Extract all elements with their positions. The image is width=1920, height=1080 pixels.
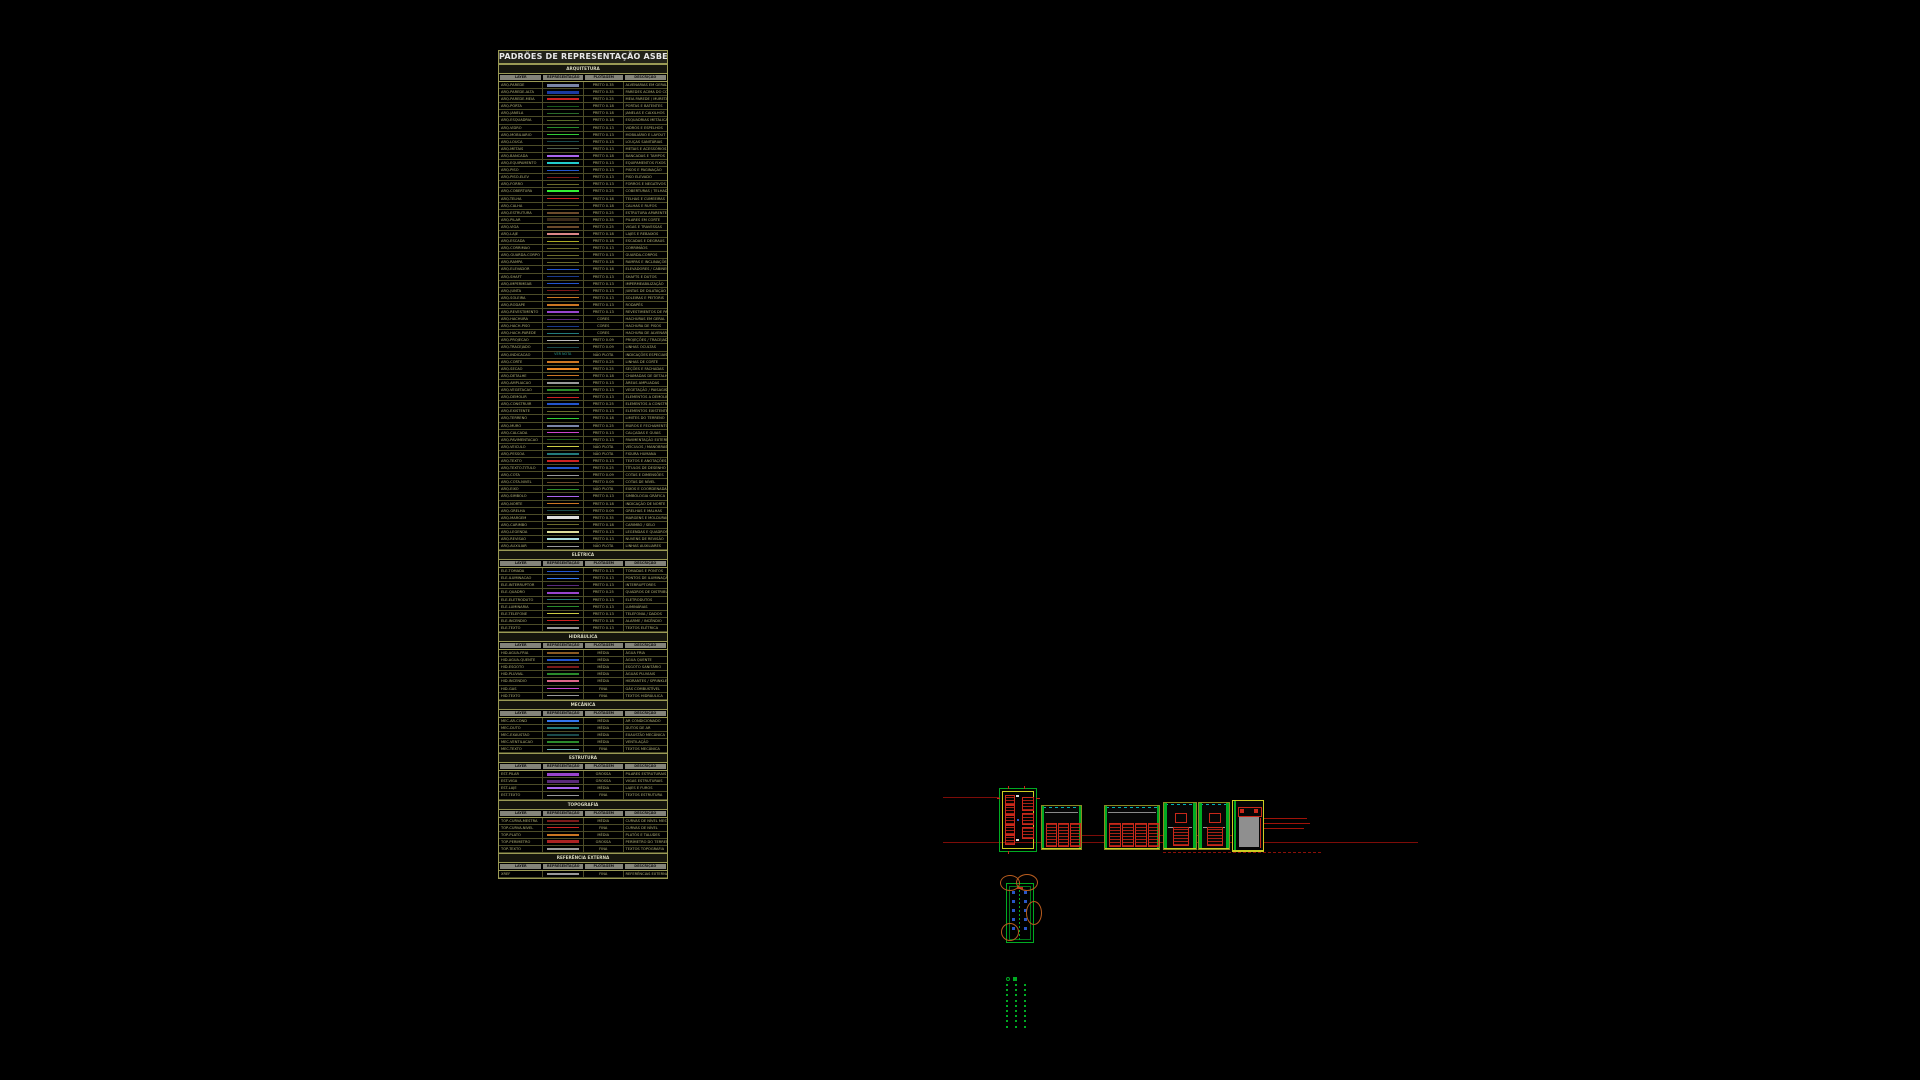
line-sample [543, 739, 585, 745]
layer-description: MARGENS E MOLDURAS [624, 515, 667, 521]
plot-setting: CORES [584, 330, 624, 336]
layer-description: CALÇADAS E GUIAS [624, 430, 667, 436]
layer-name: MEC-VENTILACAO [499, 739, 543, 745]
column-header: LAYER [500, 864, 541, 869]
legend-glyph [1015, 1026, 1017, 1028]
layer-name: ARQ-PAREDE-MEIA [499, 96, 543, 102]
legend-glyph [1024, 1010, 1026, 1012]
legend-glyph [1006, 994, 1008, 996]
plot-setting: PRETO 0.13 [584, 139, 624, 145]
layer-description: HACHURA DE PISOS [624, 323, 667, 329]
layer-description: PILARES ESTRUTURAIS [624, 771, 667, 777]
line-sample [543, 82, 585, 88]
section-header: MECÂNICA [499, 700, 667, 710]
layer-description: TELHAS E CUMEEIRAS [624, 196, 667, 202]
line-sample [543, 181, 585, 187]
layer-name: HID-ESGOTO [499, 664, 543, 670]
legend-glyph [1015, 1020, 1017, 1022]
line-sample [543, 444, 585, 450]
layer-name: ARQ-GUARDA-CORPO [499, 252, 543, 258]
layer-row: ARQ-GUARDA-CORPOPRETO 0.13GUARDA-CORPOS [499, 252, 667, 259]
layer-row: ELE-ELETRODUTOPRETO 0.13ELETRODUTOS [499, 597, 667, 604]
plot-setting: FINA [584, 746, 624, 752]
line-sample [543, 618, 585, 624]
line-sample [543, 146, 585, 152]
layer-row: ARQ-MOBILIARIOPRETO 0.13MOBILIÁRIO E LAY… [499, 132, 667, 139]
layer-description: IMPERMEABILIZAÇÃO [624, 281, 667, 287]
column-header: LAYER [500, 75, 541, 80]
plot-setting: PRETO 0.18 [584, 522, 624, 528]
line-sample [543, 316, 585, 322]
layer-name: ELE-QUADRO [499, 589, 543, 595]
layer-row: ARQ-MARGEMPRETO 0.35MARGENS E MOLDURAS [499, 515, 667, 522]
plot-setting: PRETO 0.25 [584, 589, 624, 595]
line-sample [543, 188, 585, 194]
plot-setting: PRETO 0.13 [584, 252, 624, 258]
line-sample [543, 746, 585, 752]
line-sample [543, 718, 585, 724]
plot-setting: PRETO 0.13 [584, 568, 624, 574]
legend-glyph [1024, 1015, 1026, 1017]
layer-name: ARQ-AUXILIAR [499, 543, 543, 549]
legend-glyph [1006, 1010, 1008, 1012]
layer-description: PONTOS DE ILUMINAÇÃO [624, 575, 667, 581]
legend-glyph [1024, 1020, 1026, 1022]
layer-name: ELE-ILUMINACAO [499, 575, 543, 581]
layer-row: HID-PLUVIALMÉDIAÁGUAS PLUVIAIS [499, 671, 667, 678]
layer-description: ÁGUAS PLUVIAIS [624, 671, 667, 677]
plot-setting: PRETO 0.18 [584, 238, 624, 244]
line-sample [543, 380, 585, 386]
line-sample [543, 401, 585, 407]
layer-row: ARQ-PAREDEPRETO 0.35ALVENARIAS EM GERAL [499, 82, 667, 89]
layer-description: INDICAÇÃO DE NORTE [624, 501, 667, 507]
plot-setting: MÉDIA [584, 818, 624, 824]
line-sample [543, 110, 585, 116]
layer-description: JUNTAS DE DILATAÇÃO [624, 288, 667, 294]
line-sample [543, 575, 585, 581]
line-sample [543, 139, 585, 145]
layer-description: ELETRODUTOS [624, 597, 667, 603]
layer-name: ARQ-TEXTO [499, 458, 543, 464]
layer-row: ARQ-RAMPAPRETO 0.18RAMPAS E INCLINAÇÕES [499, 259, 667, 266]
layer-description: SOLEIRAS E PEITORIS [624, 295, 667, 301]
line-sample [543, 415, 585, 421]
column-header-row: LAYERREPRESENTAÇÃOPLOTAGEMDESCRIÇÃO [499, 560, 667, 568]
section-header: TOPOGRAFIA [499, 800, 667, 810]
layer-description: CURVAS DE NÍVEL [624, 825, 667, 831]
layer-description: LINHAS AUXILIARES [624, 543, 667, 549]
layer-row: EST-TEXTOFINATEXTOS ESTRUTURA [499, 792, 667, 799]
layer-row: ARQ-GRELHAPRETO 0.09GRELHAS E MALHAS [499, 508, 667, 515]
layer-row: ARQ-REVESTIMENTOPRETO 0.13REVESTIMENTOS … [499, 309, 667, 316]
line-sample [543, 597, 585, 603]
line-sample [543, 423, 585, 429]
layer-description: MEIA PAREDE / MURETA [624, 96, 667, 102]
layer-description: BANCADAS E TAMPOS [624, 153, 667, 159]
layer-description: SIMBOLOGIA GRÁFICA [624, 493, 667, 499]
layer-name: HID-TEXTO [499, 693, 543, 699]
layer-description: MOBILIÁRIO E LAYOUT [624, 132, 667, 138]
plot-setting: PRETO 0.25 [584, 210, 624, 216]
layer-description: HACHURA DE ALVENARIA [624, 330, 667, 336]
line-sample [543, 408, 585, 414]
line-sample [543, 231, 585, 237]
layer-row: TOP-CURVA-MESTRAMÉDIACURVAS DE NÍVEL MES… [499, 818, 667, 825]
plot-setting: PRETO 0.09 [584, 344, 624, 350]
layer-description: PILARES EM CORTE [624, 217, 667, 223]
layer-name: ARQ-ELEVADOR [499, 266, 543, 272]
plot-setting: PRETO 0.13 [584, 430, 624, 436]
layer-row: ARQ-VEGETACAOPRETO 0.13VEGETAÇÃO / PAISA… [499, 387, 667, 394]
column-header: PLOTAGEM [585, 864, 623, 869]
line-sample [543, 611, 585, 617]
layer-row: ARQ-SECAOPRETO 0.25SEÇÕES E FACHADAS [499, 366, 667, 373]
layer-name: HID-GAS [499, 686, 543, 692]
line-sample [543, 515, 585, 521]
layer-name: ARQ-PORTA [499, 103, 543, 109]
line-sample [543, 281, 585, 287]
line-sample [543, 217, 585, 223]
layer-row: ARQ-EQUIPAMENTOPRETO 0.13EQUIPAMENTOS FI… [499, 160, 667, 167]
layer-name: ARQ-PESSOA [499, 451, 543, 457]
layer-description: LINHAS OCULTAS [624, 344, 667, 350]
column-header: DESCRIÇÃO [625, 561, 666, 566]
line-sample [543, 693, 585, 699]
layer-name: ARQ-JUNTA [499, 288, 543, 294]
line-sample [543, 430, 585, 436]
line-sample: VER NOTA [543, 352, 585, 358]
plot-setting: PRETO 0.18 [584, 231, 624, 237]
line-sample [543, 196, 585, 202]
leader-line [1263, 818, 1307, 819]
column-header: REPRESENTAÇÃO [543, 75, 583, 80]
line-sample [543, 465, 585, 471]
legend-glyph [1006, 984, 1008, 986]
layer-name: HID-AGUA-FRIA [499, 650, 543, 656]
layer-row: EST-PILARGROSSAPILARES ESTRUTURAIS [499, 771, 667, 778]
plot-setting: PRETO 0.18 [584, 415, 624, 421]
plot-setting: PRETO 0.13 [584, 167, 624, 173]
legend-glyph [1024, 1026, 1026, 1028]
layer-name: ARQ-CONSTRUIR [499, 401, 543, 407]
layer-description: HIDRANTES / SPRINKLERS [624, 678, 667, 684]
layer-row: ARQ-CALHAPRETO 0.18CALHAS E RUFOS [499, 203, 667, 210]
layer-name: ELE-INTERRUPTOR [499, 582, 543, 588]
plot-setting: PRETO 0.18 [584, 259, 624, 265]
layer-name: ARQ-EQUIPAMENTO [499, 160, 543, 166]
plot-setting: PRETO 0.13 [584, 387, 624, 393]
layer-row: XREFFINAREFERÊNCIAS EXTERNAS [499, 871, 667, 878]
legend-glyph [1015, 1010, 1017, 1012]
layer-name: EST-TEXTO [499, 792, 543, 798]
revision-cloud [1026, 901, 1042, 925]
line-sample [543, 818, 585, 824]
column-header: LAYER [500, 811, 541, 816]
plot-setting: PRETO 0.25 [584, 96, 624, 102]
layer-description: CORRIMÃOS [624, 245, 667, 251]
layer-description: LEGENDAS E QUADROS [624, 529, 667, 535]
line-sample [543, 625, 585, 631]
column-header: PLOTAGEM [585, 643, 623, 648]
line-sample [543, 373, 585, 379]
line-sample [543, 337, 585, 343]
line-sample [543, 359, 585, 365]
layer-description: ALVENARIAS EM GERAL [624, 82, 667, 88]
layer-row: ARQ-PILARPRETO 0.35PILARES EM CORTE [499, 217, 667, 224]
dimension-tick [1008, 851, 1009, 854]
layer-row: ARQ-LEGENDAPRETO 0.13LEGENDAS E QUADROS [499, 529, 667, 536]
line-sample [543, 323, 585, 329]
column-header: PLOTAGEM [585, 75, 623, 80]
layer-name: ARQ-PAVIMENTACAO [499, 437, 543, 443]
line-sample [543, 203, 585, 209]
interior-elevation-1 [1041, 805, 1082, 850]
cad-model-space[interactable]: PADRÕES DE REPRESENTAÇÃO ASBEA ARQUITETU… [0, 0, 1920, 1080]
layer-name: ARQ-LAJE [499, 231, 543, 237]
layer-row: ARQ-AUXILIARNÃO PLOTALINHAS AUXILIARES [499, 543, 667, 550]
floor-plan-sanitary [999, 788, 1037, 852]
layer-name: ARQ-COTA [499, 472, 543, 478]
plot-setting: PRETO 0.13 [584, 160, 624, 166]
layer-name: ARQ-LEGENDA [499, 529, 543, 535]
asbea-standards-table: PADRÕES DE REPRESENTAÇÃO ASBEA ARQUITETU… [498, 50, 668, 879]
layer-name: ARQ-VIDRO [499, 125, 543, 131]
layer-name: ARQ-COBERTURA [499, 188, 543, 194]
column-header: DESCRIÇÃO [625, 75, 666, 80]
column-header: REPRESENTAÇÃO [543, 764, 583, 769]
plot-setting: PRETO 0.35 [584, 82, 624, 88]
layer-description: TEXTOS TOPOGRAFIA [624, 846, 667, 852]
plot-setting: PRETO 0.09 [584, 337, 624, 343]
layer-name: TOP-CURVA-MESTRA [499, 818, 543, 824]
plot-setting: PRETO 0.18 [584, 373, 624, 379]
layer-name: ARQ-INDICACAO [499, 352, 543, 358]
layer-description: ELEMENTOS EXISTENTES [624, 408, 667, 414]
layer-name: ELE-TOMADA [499, 568, 543, 574]
plot-setting: MÉDIA [584, 678, 624, 684]
mirror-panel [1239, 817, 1259, 847]
layer-description: TOMADAS E PONTOS [624, 568, 667, 574]
layer-description: REFERÊNCIAS EXTERNAS [624, 871, 667, 877]
layer-row: ARQ-PROJECAOPRETO 0.09PROJEÇÕES / TRACEJ… [499, 337, 667, 344]
layer-name: ARQ-PROJECAO [499, 337, 543, 343]
layer-row: ARQ-CORRIMAOPRETO 0.13CORRIMÃOS [499, 245, 667, 252]
plot-setting: MÉDIA [584, 664, 624, 670]
layer-row: ARQ-CORTEPRETO 0.25LINHAS DE CORTE [499, 359, 667, 366]
layer-description: ELEMENTOS A CONSTRUIR [624, 401, 667, 407]
leader-line [1263, 828, 1304, 829]
layer-row: EST-VIGAGROSSAVIGAS ESTRUTURAIS [499, 778, 667, 785]
plot-setting: PRETO 0.18 [584, 203, 624, 209]
layer-row: MEC-VENTILACAOMÉDIAVENTILAÇÃO [499, 739, 667, 746]
layer-name: ARQ-TELHA [499, 196, 543, 202]
layer-name: ARQ-CALHA [499, 203, 543, 209]
plot-setting: PRETO 0.13 [584, 245, 624, 251]
plot-setting: PRETO 0.25 [584, 401, 624, 407]
layer-description: ELEVADORES / CABINES [624, 266, 667, 272]
layer-row: EST-LAJEMÉDIALAJES E FUROS [499, 785, 667, 792]
layer-name: ARQ-DEMOLIR [499, 394, 543, 400]
line-sample [543, 771, 585, 777]
plot-setting: MÉDIA [584, 671, 624, 677]
plot-setting: CORES [584, 316, 624, 322]
plot-setting: FINA [584, 693, 624, 699]
legend-glyph [1006, 1026, 1008, 1028]
dimension-tick [1036, 798, 1040, 799]
layer-description: ÁGUA FRIA [624, 650, 667, 656]
dimension-line [943, 797, 1000, 798]
line-sample [543, 501, 585, 507]
layer-name: ARQ-MOBILIARIO [499, 132, 543, 138]
column-header: LAYER [500, 764, 541, 769]
plot-setting: FINA [584, 871, 624, 877]
layer-description: ESTRUTURA APARENTE [624, 210, 667, 216]
layer-name: HID-AGUA-QUENTE [499, 657, 543, 663]
layer-description: ALARME / INCÊNDIO [624, 618, 667, 624]
layer-name: ARQ-CORRIMAO [499, 245, 543, 251]
layer-row: ARQ-ESQUADRIAPRETO 0.18ESQUADRIAS METÁLI… [499, 117, 667, 124]
layer-name: TOP-PLATO [499, 832, 543, 838]
plot-setting: FINA [584, 846, 624, 852]
table-title: PADRÕES DE REPRESENTAÇÃO ASBEA [499, 51, 667, 64]
line-sample [543, 167, 585, 173]
legend-glyph [1015, 989, 1017, 991]
layer-description: LAJES E REBAIXOS [624, 231, 667, 237]
layer-name: TOP-PERIMETRO [499, 839, 543, 845]
layer-name: ARQ-RAMPA [499, 259, 543, 265]
layer-row: HID-GASFINAGÁS COMBUSTÍVEL [499, 686, 667, 693]
plot-setting: MÉDIA [584, 832, 624, 838]
layer-row: ARQ-TELHAPRETO 0.18TELHAS E CUMEEIRAS [499, 196, 667, 203]
layer-name: ARQ-CORTE [499, 359, 543, 365]
layer-description: PERÍMETRO DO TERRENO [624, 839, 667, 845]
section-header: ESTRUTURA [499, 753, 667, 763]
layer-row: ARQ-HACH-PAREDECORESHACHURA DE ALVENARIA [499, 330, 667, 337]
layer-description: ELEMENTOS A DEMOLIR [624, 394, 667, 400]
column-header: PLOTAGEM [585, 711, 623, 716]
layer-description: RAMPAS E INCLINAÇÕES [624, 259, 667, 265]
layer-description: CHAMADAS DE DETALHE [624, 373, 667, 379]
column-header-row: LAYERREPRESENTAÇÃOPLOTAGEMDESCRIÇÃO [499, 863, 667, 871]
line-sample [543, 522, 585, 528]
plot-setting: FINA [584, 686, 624, 692]
column-header: REPRESENTAÇÃO [543, 643, 583, 648]
layer-row: MEC-AR-CONDMÉDIAAR CONDICIONADO [499, 718, 667, 725]
plot-setting: PRETO 0.18 [584, 153, 624, 159]
layer-name: ARQ-REVESTIMENTO [499, 309, 543, 315]
plot-setting: PRETO 0.13 [584, 146, 624, 152]
layer-name: ARQ-NORTE [499, 501, 543, 507]
layer-description: LOUÇAS SANITÁRIAS [624, 139, 667, 145]
interior-elevation-2 [1104, 805, 1160, 850]
column-header: DESCRIÇÃO [625, 864, 666, 869]
layer-name: ARQ-DETALHE [499, 373, 543, 379]
layer-name: ARQ-VEICULO [499, 444, 543, 450]
plot-setting: MÉDIA [584, 657, 624, 663]
dimension-tick [997, 798, 1000, 799]
layer-description: EQUIPAMENTOS FIXOS [624, 160, 667, 166]
line-sample [543, 472, 585, 478]
plot-setting: PRETO 0.09 [584, 472, 624, 478]
layer-name: ELE-LUMINARIA [499, 604, 543, 610]
layer-description: INTERRUPTORES [624, 582, 667, 588]
layer-row: HID-ESGOTOMÉDIAESGOTO SANITÁRIO [499, 664, 667, 671]
layer-description: PROJEÇÕES / TRACEJADOS [624, 337, 667, 343]
layer-name: ARQ-GRELHA [499, 508, 543, 514]
column-header-row: LAYERREPRESENTAÇÃOPLOTAGEMDESCRIÇÃO [499, 763, 667, 771]
plot-setting: MÉDIA [584, 785, 624, 791]
layer-row: TOP-CURVA-NIVELFINACURVAS DE NÍVEL [499, 825, 667, 832]
legend-glyph [1024, 994, 1026, 996]
layer-row: HID-TEXTOFINATEXTOS HIDRÁULICA [499, 693, 667, 700]
layer-row: ELE-LUMINARIAPRETO 0.13LUMINÁRIAS [499, 604, 667, 611]
revision-cloud [1001, 923, 1019, 941]
line-sample [543, 252, 585, 258]
column-header: REPRESENTAÇÃO [543, 811, 583, 816]
layer-row: ARQ-EIXONÃO PLOTAEIXOS E COORDENADAS [499, 486, 667, 493]
column-header: PLOTAGEM [585, 764, 623, 769]
layer-description: LAJES E FUROS [624, 785, 667, 791]
layer-row: ELE-INCENDIOPRETO 0.18ALARME / INCÊNDIO [499, 618, 667, 625]
plot-setting: PRETO 0.13 [584, 295, 624, 301]
layer-row: ARQ-COTAPRETO 0.09COTAS E DIMENSÕES [499, 472, 667, 479]
layer-description: JANELAS E CAIXILHOS [624, 110, 667, 116]
layer-row: ARQ-SHAFTPRETO 0.13SHAFTS E DUTOS [499, 274, 667, 281]
layer-description: CURVAS DE NÍVEL MESTRAS [624, 818, 667, 824]
layer-name: ARQ-PISO [499, 167, 543, 173]
line-sample [543, 153, 585, 159]
line-sample [543, 344, 585, 350]
line-sample [543, 568, 585, 574]
legend-glyph [1015, 1005, 1017, 1007]
line-sample [543, 792, 585, 798]
column-header: REPRESENTAÇÃO [543, 711, 583, 716]
layer-row: HID-AGUA-FRIAMÉDIAÁGUA FRIA [499, 650, 667, 657]
legend-glyph [1015, 994, 1017, 996]
layer-description: VIGAS ESTRUTURAIS [624, 778, 667, 784]
line-sample [543, 604, 585, 610]
layer-description: GRELHAS E MALHAS [624, 508, 667, 514]
plot-setting: PRETO 0.18 [584, 103, 624, 109]
layer-row: ARQ-CALCADAPRETO 0.13CALÇADAS E GUIAS [499, 430, 667, 437]
layer-row: ELE-QUADROPRETO 0.25QUADROS DE DISTRIBUI… [499, 589, 667, 596]
layer-name: ARQ-RODAPE [499, 302, 543, 308]
plot-setting: PRETO 0.13 [584, 597, 624, 603]
layer-row: TOP-PERIMETROGROSSAPERÍMETRO DO TERRENO [499, 839, 667, 846]
layer-row: ARQ-VIGAPRETO 0.25VIGAS E TRAVESSAS [499, 224, 667, 231]
layer-name: ARQ-LOUCA [499, 139, 543, 145]
layer-name: ARQ-EXISTENTE [499, 408, 543, 414]
layer-name: ARQ-FORRO [499, 181, 543, 187]
plot-setting: PRETO 0.18 [584, 117, 624, 123]
layer-name: ELE-TELEFONE [499, 611, 543, 617]
layer-description: HACHURAS EM GERAL [624, 316, 667, 322]
layer-row: ARQ-PAREDE-MEIAPRETO 0.25MEIA PAREDE / M… [499, 96, 667, 103]
line-sample [543, 589, 585, 595]
layer-name: ARQ-HACH-PISO [499, 323, 543, 329]
line-sample [543, 295, 585, 301]
plot-setting: PRETO 0.13 [584, 611, 624, 617]
legend-glyph [1015, 1015, 1017, 1017]
layer-description: VENTILAÇÃO [624, 739, 667, 745]
column-header: DESCRIÇÃO [625, 643, 666, 648]
plot-setting: PRETO 0.09 [584, 479, 624, 485]
layer-row: ARQ-NORTEPRETO 0.18INDICAÇÃO DE NORTE [499, 501, 667, 508]
line-sample [543, 486, 585, 492]
layer-description: EIXOS E COORDENADAS [624, 486, 667, 492]
layer-name: ARQ-JANELA [499, 110, 543, 116]
